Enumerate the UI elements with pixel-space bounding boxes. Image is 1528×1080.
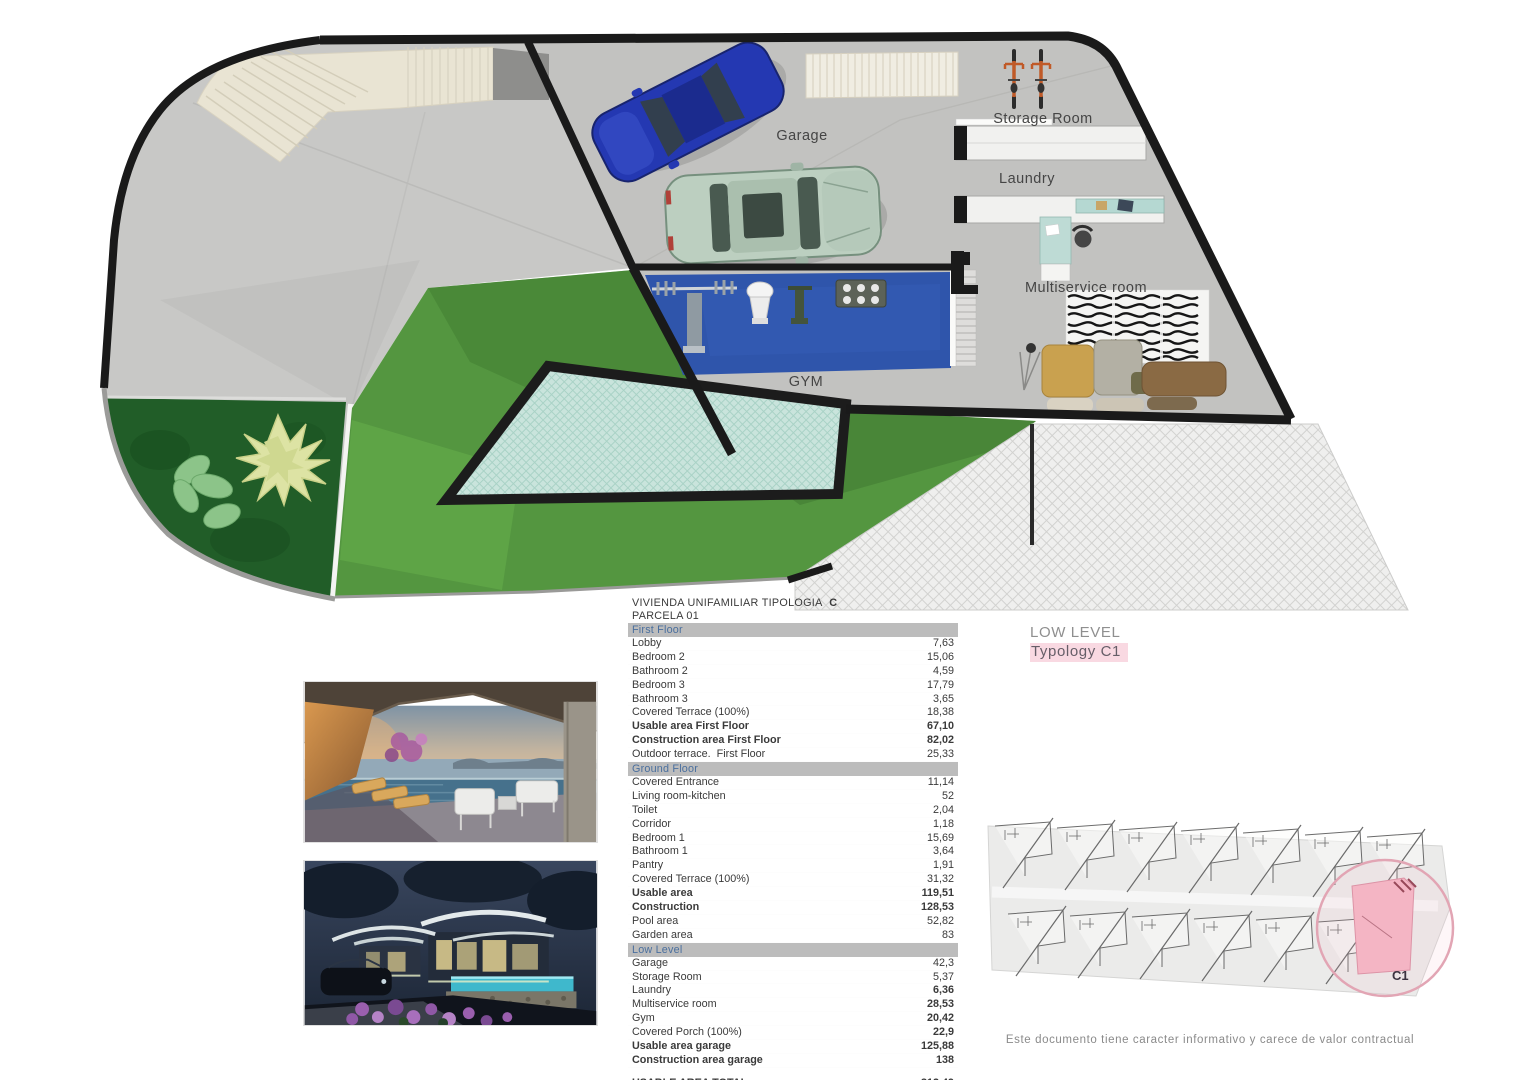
row-label: Gym	[632, 1012, 655, 1025]
row-label: Usable area First Floor	[632, 720, 749, 733]
row-label: Covered Terrace (100%)	[632, 873, 749, 886]
table-row: Bathroom 24,59	[628, 665, 958, 679]
table-row: Corridor1,18	[628, 818, 958, 832]
level-name: LOW LEVEL	[1030, 624, 1128, 642]
row-value: 5,37	[933, 971, 954, 984]
level-tag: LOW LEVEL Typology C1	[1030, 624, 1128, 662]
row-label: Construction area First Floor	[632, 734, 781, 747]
highlighted-unit: C1	[1317, 860, 1453, 996]
row-label: Living room-kitchen	[632, 790, 726, 803]
table-row: Multiservice room28,53	[628, 998, 958, 1012]
row-value: 28,53	[927, 998, 954, 1011]
gym-label: GYM	[789, 374, 824, 390]
table-row: Covered Terrace (100%)18,38	[628, 706, 958, 720]
row-label: Garden area	[632, 929, 693, 942]
row-value: 11,14	[928, 776, 954, 789]
table-row: Lobby7,63	[628, 637, 958, 651]
table-row: Storage Room5,37	[628, 971, 958, 985]
row-label: Pantry	[632, 859, 663, 872]
car-green	[663, 158, 889, 272]
row-label: Bedroom 2	[632, 651, 685, 664]
table-row: Bedroom 317,79	[628, 679, 958, 693]
row-value: 2,04	[933, 804, 954, 817]
floor-plan: Garage Storage Room Laundry Multiservice…	[0, 0, 1528, 650]
row-label: Bathroom 3	[632, 693, 688, 706]
row-value: 3,65	[933, 693, 954, 706]
row-label: Construction area garage	[632, 1054, 763, 1067]
table-section-header: Low Level	[628, 943, 958, 957]
row-value: 25,33	[927, 748, 954, 761]
row-label: Multiservice room	[632, 998, 717, 1011]
row-value: 3,64	[933, 845, 954, 858]
table-row: Usable area garage125,88	[628, 1040, 958, 1054]
table-row: Pantry1,91	[628, 859, 958, 873]
table-row: Bathroom 33,65	[628, 693, 958, 707]
row-value: 6,36	[933, 984, 954, 997]
table-row: Outdoor terrace. First Floor25,33	[628, 748, 958, 762]
storage-room-label: Storage Room	[993, 111, 1093, 127]
garage-label: Garage	[776, 128, 827, 144]
table-row: Bedroom 215,06	[628, 651, 958, 665]
row-value: 42,3	[933, 957, 954, 970]
multiservice-room-label: Multiservice room	[1025, 280, 1147, 296]
row-label: Storage Room	[632, 971, 702, 984]
site-unit-label: C1	[1392, 968, 1409, 983]
row-value: 31,32	[927, 873, 954, 886]
table-row: Covered Terrace (100%)31,32	[628, 873, 958, 887]
row-value: 138	[936, 1054, 954, 1067]
area-table: VIVIENDA UNIFAMILIAR TIPOLOGIA C PARCELA…	[628, 597, 958, 1080]
row-label: Bathroom 1	[632, 845, 688, 858]
table-row: Garage42,3	[628, 957, 958, 971]
site-plan: C1	[980, 788, 1470, 1028]
row-value: 52	[942, 790, 954, 803]
row-value: 22,9	[933, 1026, 954, 1039]
villa-night-photo	[303, 860, 598, 1026]
garage-door	[806, 52, 958, 98]
row-value: 1,91	[933, 859, 954, 872]
row-label: Usable area garage	[632, 1040, 731, 1053]
totals-gap	[628, 1068, 958, 1077]
row-label: Pool area	[632, 915, 678, 928]
row-label: Garage	[632, 957, 668, 970]
table-row: Covered Porch (100%)22,9	[628, 1026, 958, 1040]
table-title-typology: C	[829, 597, 837, 609]
table-section-header: First Floor	[628, 623, 958, 637]
row-label: Covered Entrance	[632, 776, 719, 789]
row-label: Covered Terrace (100%)	[632, 706, 749, 719]
row-label: Covered Porch (100%)	[632, 1026, 742, 1039]
row-value: 1,18	[933, 818, 954, 831]
terrace-photo	[303, 681, 598, 843]
row-value: 119,51	[922, 887, 954, 900]
laundry-label: Laundry	[999, 171, 1055, 187]
table-row: Living room-kitchen52	[628, 790, 958, 804]
row-value: 82,02	[927, 734, 954, 747]
table-row: Covered Entrance11,14	[628, 776, 958, 790]
table-row: Construction area First Floor82,02	[628, 734, 958, 748]
table-row: Bathroom 13,64	[628, 845, 958, 859]
area-table-body: First FloorLobby7,63Bedroom 215,06Bathro…	[628, 623, 958, 1080]
disclaimer-text: Este documento tiene caracter informativ…	[980, 1034, 1440, 1046]
row-value: 83	[942, 929, 954, 942]
row-value: 18,38	[927, 706, 954, 719]
row-label: Bathroom 2	[632, 665, 688, 678]
row-value: 15,69	[927, 832, 954, 845]
table-row: Construction area garage138	[628, 1054, 958, 1068]
row-label: Usable area	[632, 887, 693, 900]
table-row: Gym20,42	[628, 1012, 958, 1026]
table-row: Laundry6,36	[628, 984, 958, 998]
typology-badge: Typology C1	[1030, 643, 1128, 662]
table-subtitle: PARCELA 01	[628, 610, 958, 623]
table-row: Usable area First Floor67,10	[628, 720, 958, 734]
table-row: Bedroom 115,69	[628, 832, 958, 846]
row-label: Toilet	[632, 804, 657, 817]
table-section-header: Ground Floor	[628, 762, 958, 776]
row-value: 52,82	[927, 915, 954, 928]
row-label: Outdoor terrace. First Floor	[632, 748, 765, 761]
row-label: Bedroom 3	[632, 679, 685, 692]
row-value: 20,42	[927, 1012, 954, 1025]
table-title: VIVIENDA UNIFAMILIAR TIPOLOGIA C	[628, 597, 958, 610]
row-value: 125,88	[921, 1040, 954, 1053]
row-value: 128,53	[921, 901, 954, 914]
table-row: Pool area52,82	[628, 915, 958, 929]
row-value: 17,79	[927, 679, 954, 692]
table-title-text: VIVIENDA UNIFAMILIAR TIPOLOGIA	[632, 597, 823, 609]
table-row: Garden area83	[628, 929, 958, 943]
row-value: 4,59	[933, 665, 954, 678]
row-label: Laundry	[632, 984, 671, 997]
table-row: Usable area119,51	[628, 887, 958, 901]
document-page: Garage Storage Room Laundry Multiservice…	[0, 0, 1528, 1080]
table-row: Construction128,53	[628, 901, 958, 915]
row-label: Construction	[632, 901, 699, 914]
row-label: Corridor	[632, 818, 671, 831]
row-label: Lobby	[632, 637, 661, 650]
row-value: 15,06	[927, 651, 954, 664]
table-row: Toilet2,04	[628, 804, 958, 818]
row-label: Bedroom 1	[632, 832, 685, 845]
row-value: 67,10	[927, 720, 954, 733]
row-value: 7,63	[933, 637, 954, 650]
